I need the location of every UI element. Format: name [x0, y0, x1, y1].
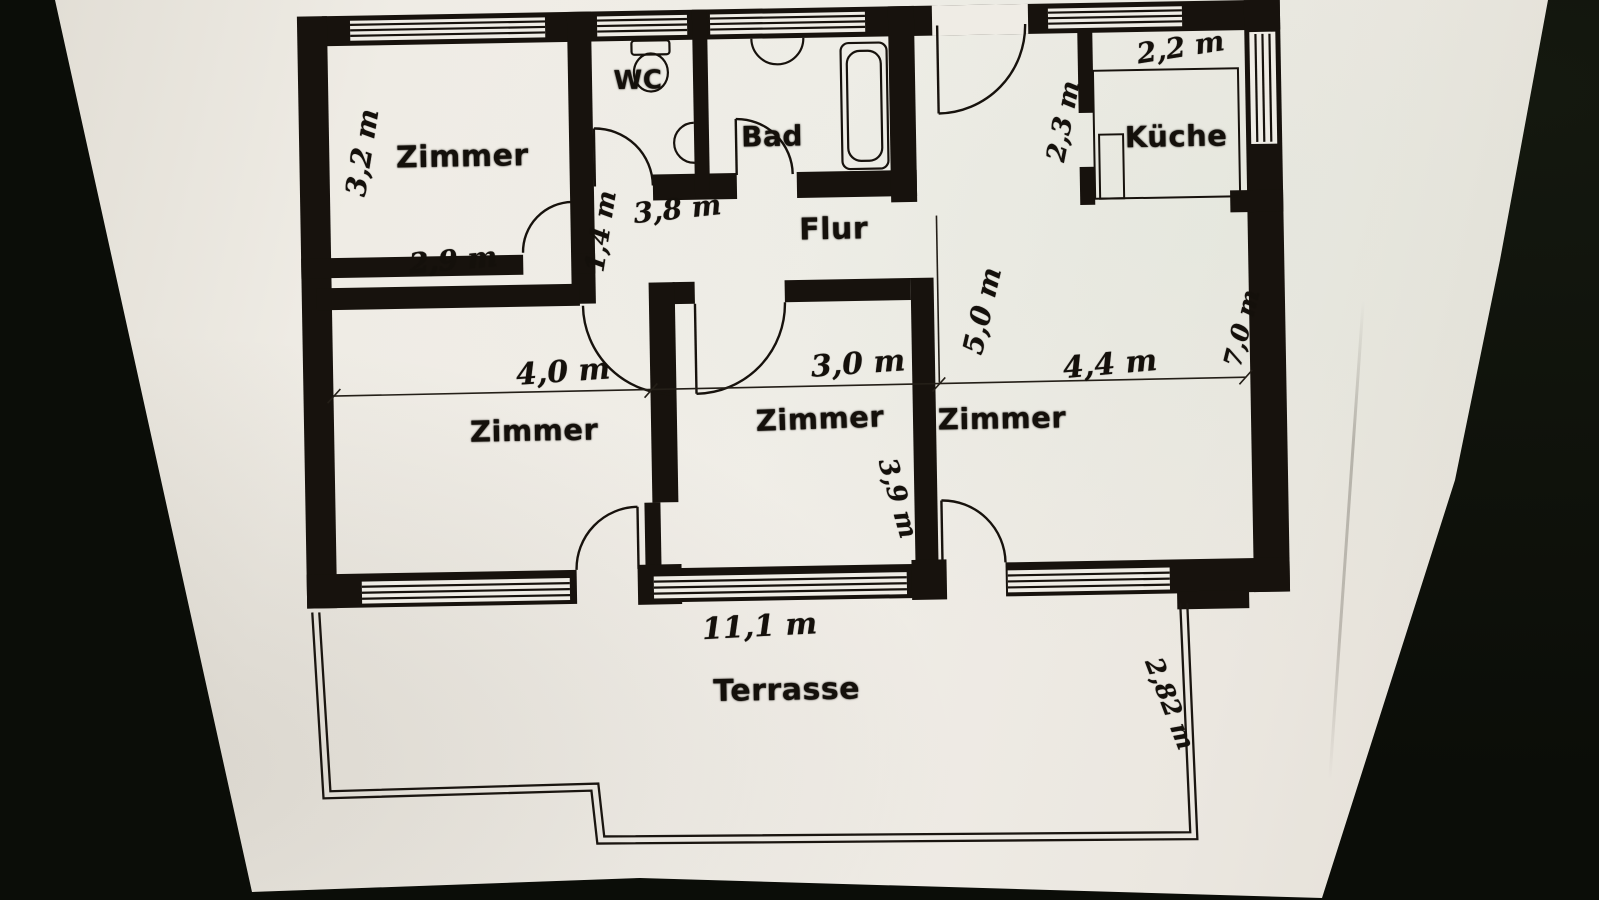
room-label-wc: WC	[613, 65, 662, 96]
dim-zimmer-left-width: 4,0 m	[515, 351, 612, 392]
door-arc-icon	[594, 128, 653, 187]
room-label-flur: Flur	[799, 211, 869, 247]
room-label-zimmer-right: Zimmer	[938, 400, 1067, 436]
room-label-terrasse: Terrasse	[713, 671, 860, 709]
entrance-opening	[932, 4, 1029, 36]
paper-crease	[1328, 300, 1364, 779]
scanned-photo: { "document": { "kind": "Wohnungsgrundri…	[0, 0, 1599, 900]
window	[362, 578, 570, 604]
window	[1249, 32, 1277, 144]
washbasin-icon	[751, 38, 803, 65]
dim-zimmer-middle-width: 3,0 m	[810, 343, 907, 384]
room-label-kueche: Küche	[1124, 118, 1227, 154]
door-arc-icon	[937, 24, 1027, 114]
window	[654, 572, 907, 598]
window	[1048, 6, 1182, 28]
window	[710, 12, 865, 35]
window	[350, 17, 545, 40]
room-label-zimmer-top-left: Zimmer	[396, 138, 529, 175]
room-label-zimmer-middle: Zimmer	[755, 399, 884, 437]
doors	[519, 24, 1034, 571]
door-arc-icon	[522, 202, 573, 253]
floor-plan: Zimmer WC Bad Flur Küche Zimmer Zimmer Z…	[292, 0, 1307, 895]
door-arc-icon	[575, 507, 638, 570]
walls	[297, 0, 1290, 625]
window	[597, 15, 687, 37]
door-arc-icon	[695, 302, 787, 394]
door-arc-icon	[941, 499, 1005, 563]
room-label-bad: Bad	[741, 119, 803, 153]
dim-terrasse-width: 11,1 m	[701, 606, 818, 647]
window	[1008, 568, 1170, 593]
room-label-zimmer-left: Zimmer	[470, 412, 599, 448]
washbasin-icon	[674, 123, 695, 163]
bathtub-icon	[840, 42, 888, 169]
